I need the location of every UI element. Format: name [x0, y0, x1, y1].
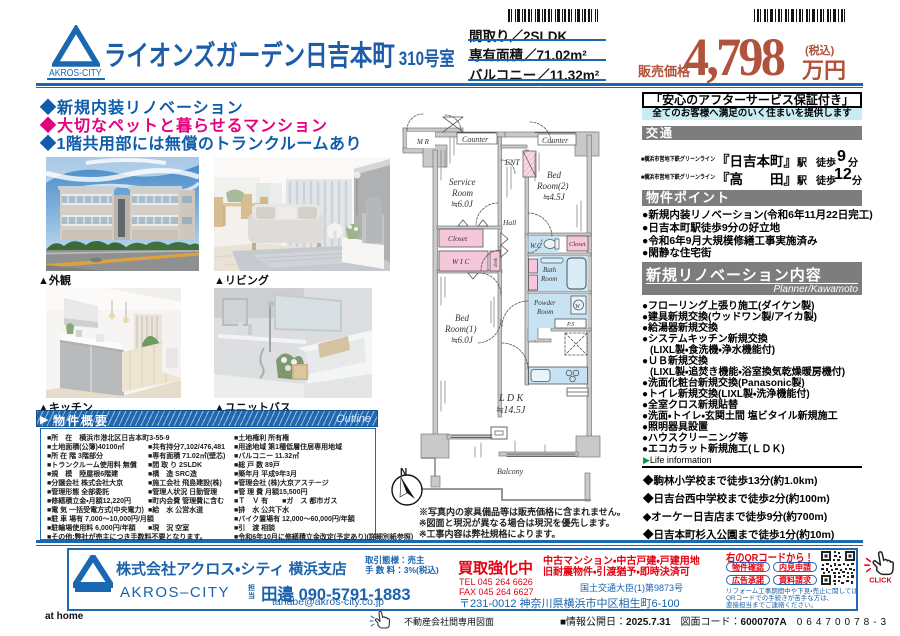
svg-text:W I C: W I C	[452, 257, 470, 266]
svg-text:Powder: Powder	[533, 299, 556, 307]
svg-text:≒6.0J: ≒6.0J	[450, 335, 474, 345]
svg-text:Service: Service	[449, 177, 475, 187]
svg-text:P.S: P.S	[566, 322, 574, 328]
svg-text:≒14.5J: ≒14.5J	[495, 405, 526, 416]
svg-text:M R: M R	[416, 138, 430, 146]
svg-text:Room(1): Room(1)	[444, 324, 477, 334]
svg-text:Closet: Closet	[569, 241, 586, 248]
svg-text:≒6.0J: ≒6.0J	[450, 199, 474, 209]
svg-text:Counter: Counter	[542, 136, 569, 145]
svg-text:L D K: L D K	[498, 393, 525, 404]
svg-text:Room: Room	[451, 188, 473, 198]
svg-text:Bed: Bed	[547, 170, 561, 180]
svg-text:Closet: Closet	[448, 234, 468, 243]
svg-text:Room(2): Room(2)	[536, 181, 569, 191]
svg-text:Room: Room	[536, 308, 553, 316]
svg-text:≒4.5J: ≒4.5J	[542, 192, 566, 202]
svg-text:CLICK: CLICK	[869, 576, 892, 585]
svg-text:Hall: Hall	[502, 218, 516, 227]
svg-text:W.C: W.C	[530, 242, 542, 250]
svg-text:desk: desk	[494, 257, 499, 267]
svg-text:Bed: Bed	[455, 313, 469, 323]
svg-text:Room: Room	[540, 275, 557, 283]
svg-text:Counter: Counter	[462, 135, 489, 144]
svg-text:Balcony: Balcony	[497, 467, 524, 476]
svg-text:Bath: Bath	[543, 266, 557, 274]
